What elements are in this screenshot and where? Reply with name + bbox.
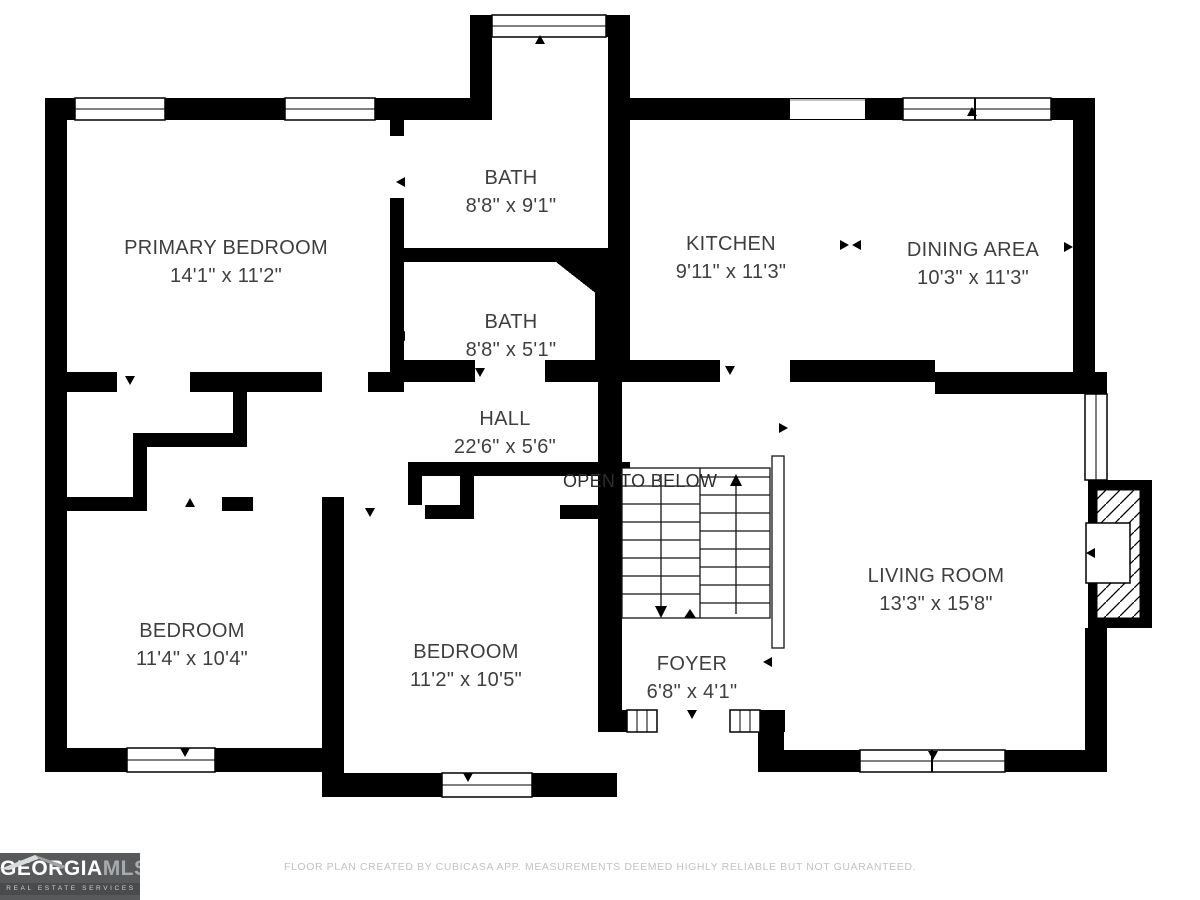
- floor-plan: PRIMARY BEDROOM 14'1" x 11'2" BATH 8'8" …: [0, 0, 1200, 900]
- room-dimensions: 8'8" x 9'1": [466, 192, 557, 220]
- room-dimensions: 6'8" x 4'1": [647, 678, 738, 706]
- room-name: KITCHEN: [676, 230, 787, 258]
- room-label-bedroom-middle: BEDROOM 11'2" x 10'5": [410, 638, 522, 694]
- sidelight-window: [627, 710, 657, 732]
- window: [492, 15, 606, 37]
- room-label-foyer: FOYER 6'8" x 4'1": [647, 650, 738, 706]
- logo-wordmark: GEORGIAMLS: [0, 853, 140, 883]
- room-dimensions: 11'4" x 10'4": [136, 645, 248, 673]
- room-label-bath-upper: BATH 8'8" x 9'1": [466, 164, 557, 220]
- room-label-dining-area: DINING AREA 10'3" x 11'3": [907, 236, 1039, 292]
- room-dimensions: 22'6" x 5'6": [454, 433, 556, 461]
- room-name: LIVING ROOM: [868, 562, 1005, 590]
- stair-railing: [772, 456, 784, 648]
- window: [903, 98, 1051, 120]
- room-label-bath-lower: BATH 8'8" x 5'1": [466, 308, 557, 364]
- room-name: HALL: [454, 405, 556, 433]
- floor-plan-drawing: [0, 0, 1200, 900]
- room-dimensions: 8'8" x 5'1": [466, 336, 557, 364]
- window: [1085, 394, 1107, 480]
- fireplace: [1086, 480, 1152, 628]
- window: [75, 98, 165, 120]
- room-label-bedroom-left: BEDROOM 11'4" x 10'4": [136, 617, 248, 673]
- logo-tagline: REAL ESTATE SERVICES: [0, 883, 140, 895]
- room-name: BEDROOM: [136, 617, 248, 645]
- room-dimensions: 11'2" x 10'5": [410, 666, 522, 694]
- room-dimensions: 14'1" x 11'2": [124, 262, 328, 290]
- roof-icon: [0, 854, 66, 870]
- room-label-primary-bedroom: PRIMARY BEDROOM 14'1" x 11'2": [124, 234, 328, 290]
- sidelight-window: [730, 710, 760, 732]
- room-name: DINING AREA: [907, 236, 1039, 264]
- room-name: PRIMARY BEDROOM: [124, 234, 328, 262]
- room-name: BATH: [466, 308, 557, 336]
- room-label-hall: HALL 22'6" x 5'6": [454, 405, 556, 461]
- wall-opening: [790, 99, 865, 119]
- walls: [45, 15, 1107, 797]
- room-dimensions: 9'11" x 11'3": [676, 258, 787, 286]
- disclaimer-text: FLOOR PLAN CREATED BY CUBICASA APP. MEAS…: [0, 861, 1200, 873]
- windows: [75, 15, 1107, 797]
- window: [442, 773, 532, 797]
- room-name: FOYER: [647, 650, 738, 678]
- room-label-kitchen: KITCHEN 9'11" x 11'3": [676, 230, 787, 286]
- georgia-mls-logo: GEORGIAMLS REAL ESTATE SERVICES: [0, 853, 140, 900]
- window: [127, 748, 215, 772]
- room-dimensions: 10'3" x 11'3": [907, 264, 1039, 292]
- logo-text-mls: MLS: [103, 857, 140, 880]
- window: [285, 98, 375, 120]
- room-name: BEDROOM: [410, 638, 522, 666]
- room-name: BATH: [466, 164, 557, 192]
- room-label-living-room: LIVING ROOM 13'3" x 15'8": [868, 562, 1005, 618]
- room-dimensions: 13'3" x 15'8": [868, 590, 1005, 618]
- open-to-below-annotation: OPEN TO BELOW: [563, 471, 717, 491]
